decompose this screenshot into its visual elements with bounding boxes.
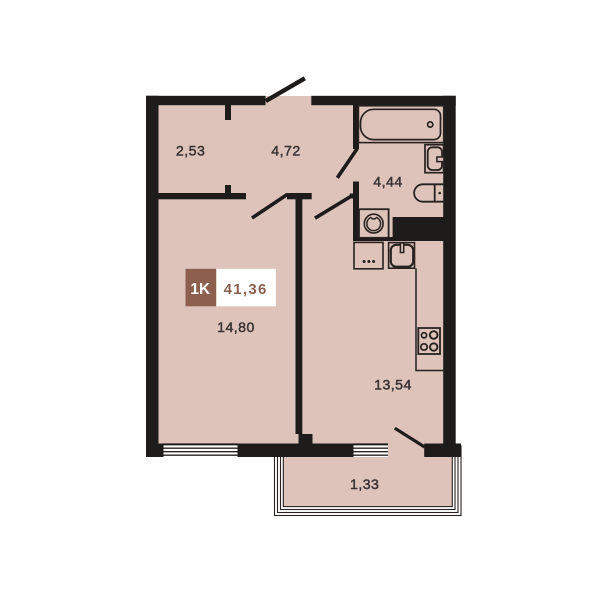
svg-text:4,44: 4,44 (373, 175, 402, 191)
svg-text:4,72: 4,72 (271, 143, 300, 159)
svg-text:41,36: 41,36 (224, 281, 268, 298)
svg-text:2,53: 2,53 (176, 143, 205, 159)
svg-text:1K: 1K (190, 281, 211, 298)
svg-text:14,80: 14,80 (217, 320, 255, 336)
svg-text:13,54: 13,54 (374, 377, 412, 393)
svg-text:1,33: 1,33 (350, 477, 379, 493)
